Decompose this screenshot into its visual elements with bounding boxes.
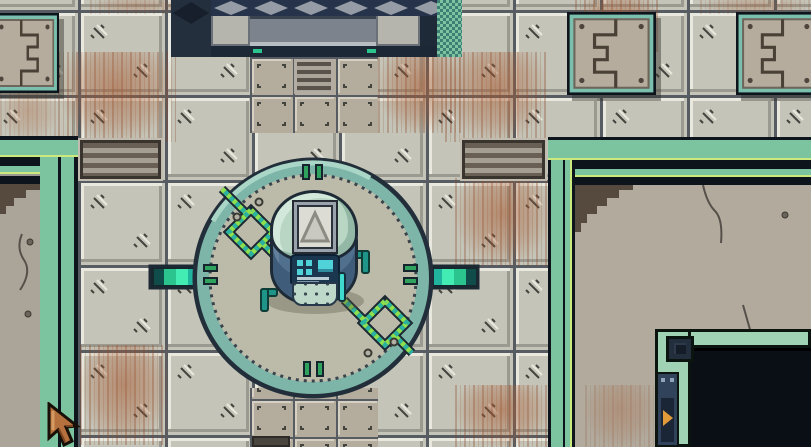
floor-hatch-panel xyxy=(567,12,656,95)
robot-right-arm xyxy=(361,250,370,274)
panel-button xyxy=(297,269,303,275)
arrow-sign xyxy=(656,372,679,447)
right-room-wall-shadow xyxy=(575,160,811,169)
right-room-wall-shadow xyxy=(575,177,811,185)
machine-hatch-band xyxy=(211,0,437,16)
floor-vent xyxy=(80,140,161,179)
panel-button xyxy=(306,269,312,275)
dark-doorway[interactable] xyxy=(691,348,811,447)
robot-speaker-dots xyxy=(292,282,338,306)
robot-control-panel xyxy=(290,254,340,284)
robot-screen-display xyxy=(297,205,333,249)
mouse-cursor[interactable] xyxy=(46,402,86,447)
panel-line xyxy=(297,277,329,280)
machine-teal-tick xyxy=(253,49,262,53)
right-room-inner-trim xyxy=(575,169,811,177)
right-room-trim-top xyxy=(548,140,811,160)
sign-dot xyxy=(661,378,665,382)
machine-step xyxy=(250,16,376,46)
game-viewport xyxy=(0,0,811,447)
triangle-icon xyxy=(299,207,331,247)
floor-vent xyxy=(462,140,545,179)
sign-dot xyxy=(670,378,674,382)
left-room-trim-top xyxy=(0,140,78,157)
floor-hatch-panel xyxy=(0,13,59,93)
machine-base-stripe xyxy=(211,46,437,57)
robot-left-arm xyxy=(260,288,269,312)
left-room-floor xyxy=(0,184,40,447)
robot[interactable] xyxy=(256,186,374,318)
robot-screen xyxy=(292,200,338,254)
machine-side-tile xyxy=(211,16,250,46)
machine-teal-tick xyxy=(367,49,376,53)
right-arrow-icon xyxy=(663,410,673,426)
ceiling-machine xyxy=(171,0,462,57)
floor-vent-slot xyxy=(252,436,290,447)
panel-button xyxy=(297,260,303,266)
machine-side-tile xyxy=(376,16,420,46)
machine-teal-column xyxy=(437,0,462,57)
floor-hatch-panel xyxy=(736,12,811,95)
floor-vent-small xyxy=(294,59,334,94)
panel-screen xyxy=(318,260,333,272)
machine-left-pillar xyxy=(171,0,211,57)
panel-button xyxy=(306,260,312,266)
doorway-corner-block xyxy=(666,336,694,362)
robot-cyan-rod xyxy=(338,272,346,302)
right-room-trim-vertical xyxy=(548,160,575,447)
